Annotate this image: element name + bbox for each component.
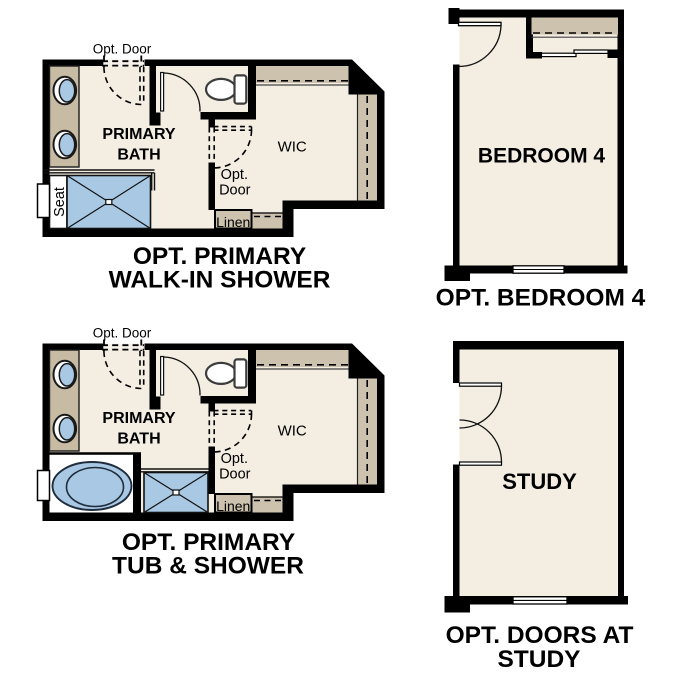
svg-text:PRIMARY: PRIMARY [102,410,176,427]
svg-text:OPT. BEDROOM 4: OPT. BEDROOM 4 [436,285,646,312]
svg-text:Opt. Door: Opt. Door [93,42,152,57]
svg-text:BATH: BATH [117,147,160,164]
svg-text:Door: Door [219,467,251,483]
svg-text:STUDY: STUDY [502,469,577,494]
svg-text:WIC: WIC [278,423,307,440]
svg-text:Seat: Seat [52,187,68,217]
svg-text:Linen: Linen [216,498,250,514]
svg-text:Linen: Linen [216,214,250,230]
svg-text:OPT. DOORS AT: OPT. DOORS AT [446,622,634,649]
svg-text:STUDY: STUDY [497,646,580,673]
svg-text:Door: Door [219,183,251,199]
svg-text:PRIMARY: PRIMARY [102,126,176,143]
svg-text:Opt.: Opt. [221,451,248,467]
svg-text:TUB & SHOWER: TUB & SHOWER [112,553,304,580]
svg-text:BATH: BATH [117,431,160,448]
svg-text:WIC: WIC [278,139,307,156]
svg-text:Opt. Door: Opt. Door [93,326,152,341]
svg-text:WALK-IN SHOWER: WALK-IN SHOWER [109,267,331,294]
svg-text:Opt.: Opt. [221,167,248,183]
svg-text:BEDROOM 4: BEDROOM 4 [478,145,606,168]
